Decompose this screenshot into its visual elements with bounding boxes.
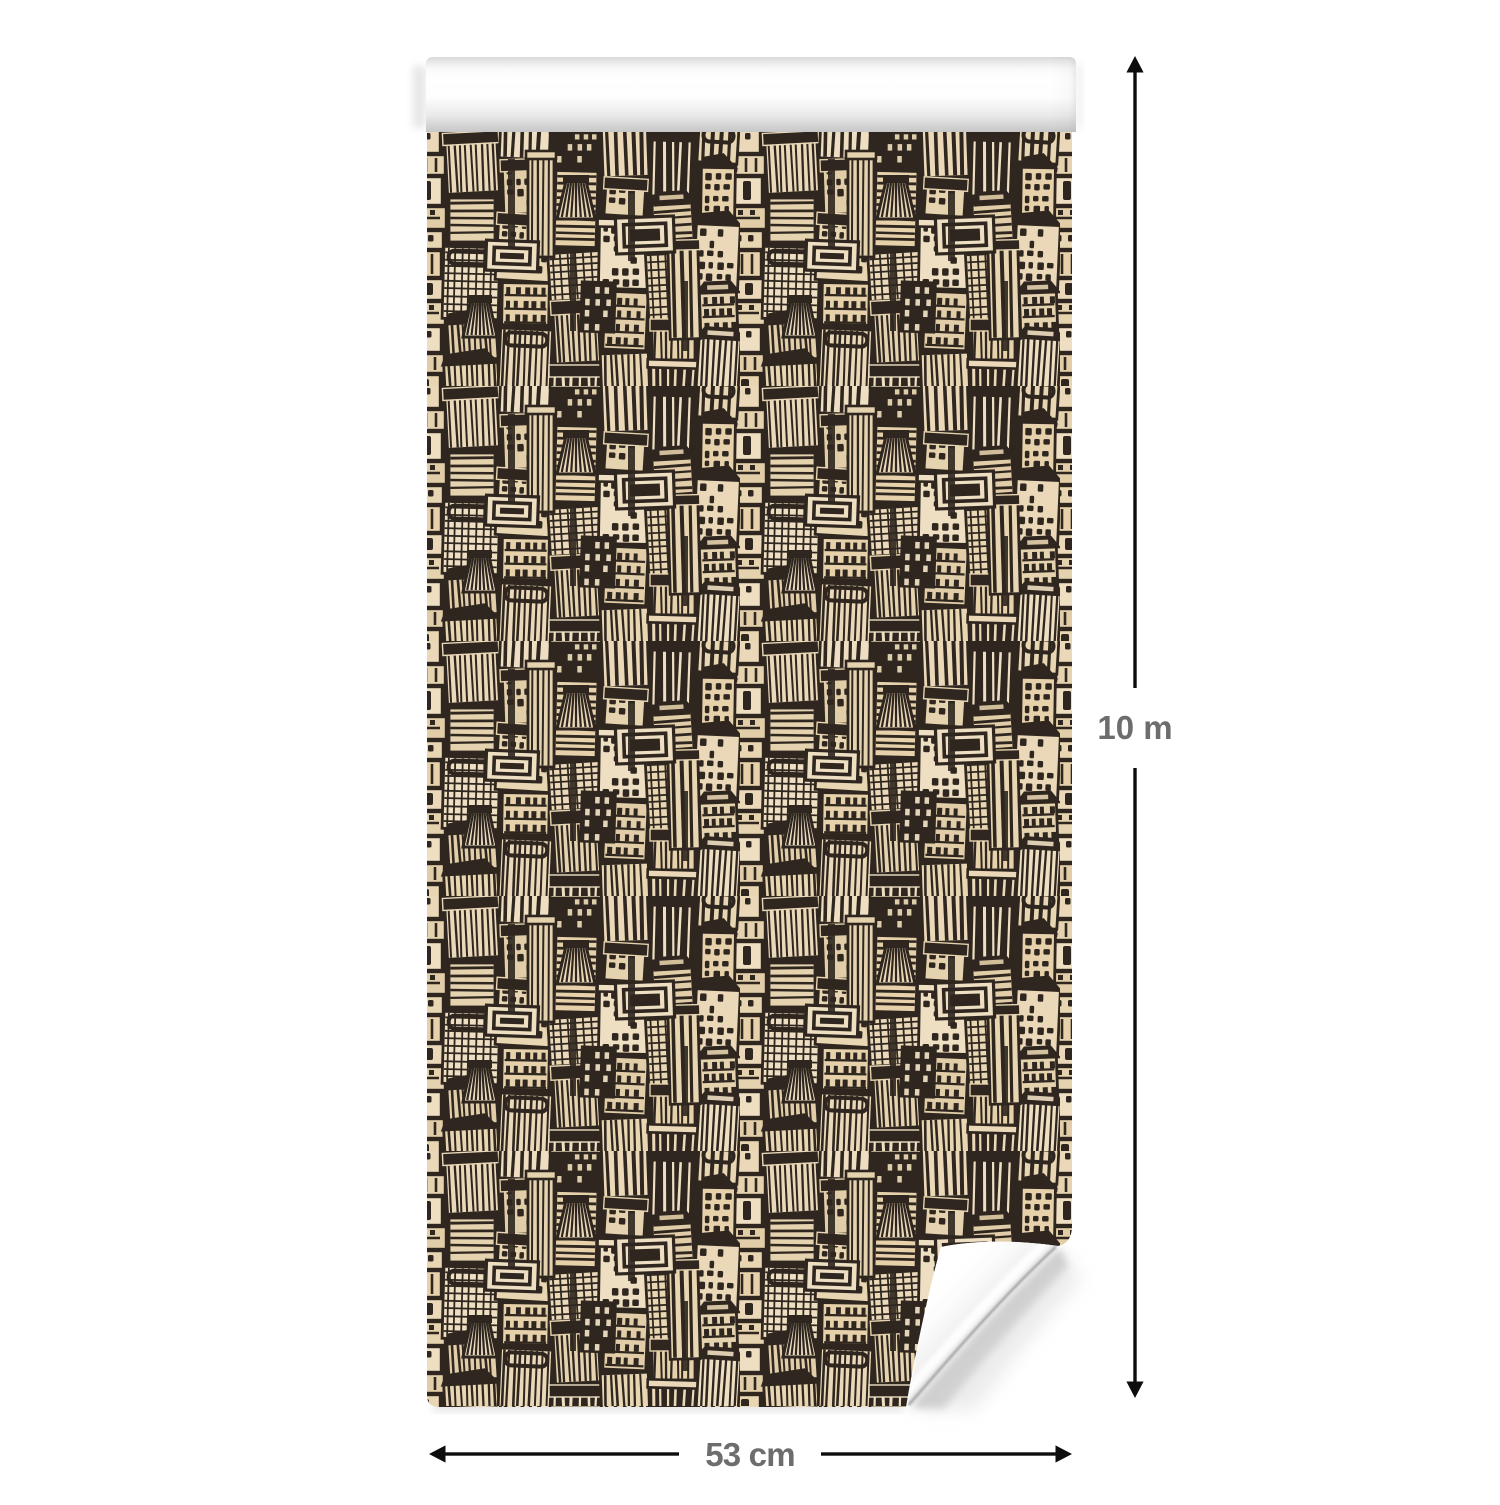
svg-text:53 cm: 53 cm	[705, 1436, 795, 1473]
svg-text:10 m: 10 m	[1097, 709, 1172, 746]
